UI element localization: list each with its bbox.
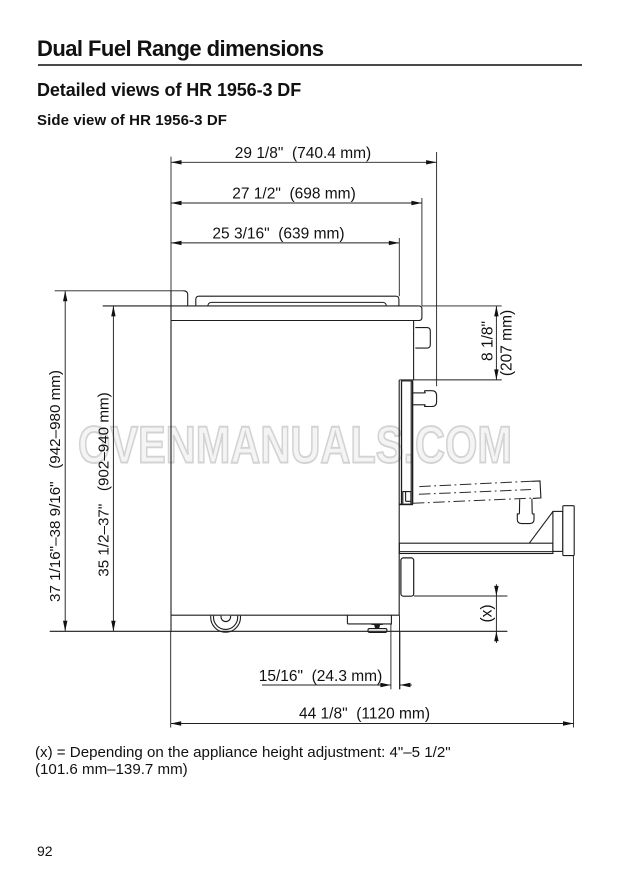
- svg-text:35 1/2–37" (902–940 mm): 35 1/2–37" (902–940 mm): [95, 392, 112, 576]
- svg-text:8 1/8": 8 1/8": [479, 321, 496, 361]
- svg-text:29 1/8" (740.4 mm): 29 1/8" (740.4 mm): [235, 145, 371, 162]
- svg-text:(x): (x): [478, 604, 495, 622]
- svg-text:27 1/2" (698 mm): 27 1/2" (698 mm): [232, 186, 356, 203]
- svg-text:15/16" (24.3 mm): 15/16" (24.3 mm): [259, 668, 383, 685]
- svg-text:25 3/16" (639 mm): 25 3/16" (639 mm): [212, 226, 344, 243]
- svg-text:44 1/8" (1120 mm): 44 1/8" (1120 mm): [299, 706, 430, 723]
- svg-text:37 1/16"–38 9/16" (942–980 m: 37 1/16"–38 9/16" (942–980 mm): [47, 370, 64, 602]
- svg-text:OVENMANUALS.COM: OVENMANUALS.COM: [78, 416, 512, 474]
- svg-text:(207 mm): (207 mm): [499, 310, 516, 376]
